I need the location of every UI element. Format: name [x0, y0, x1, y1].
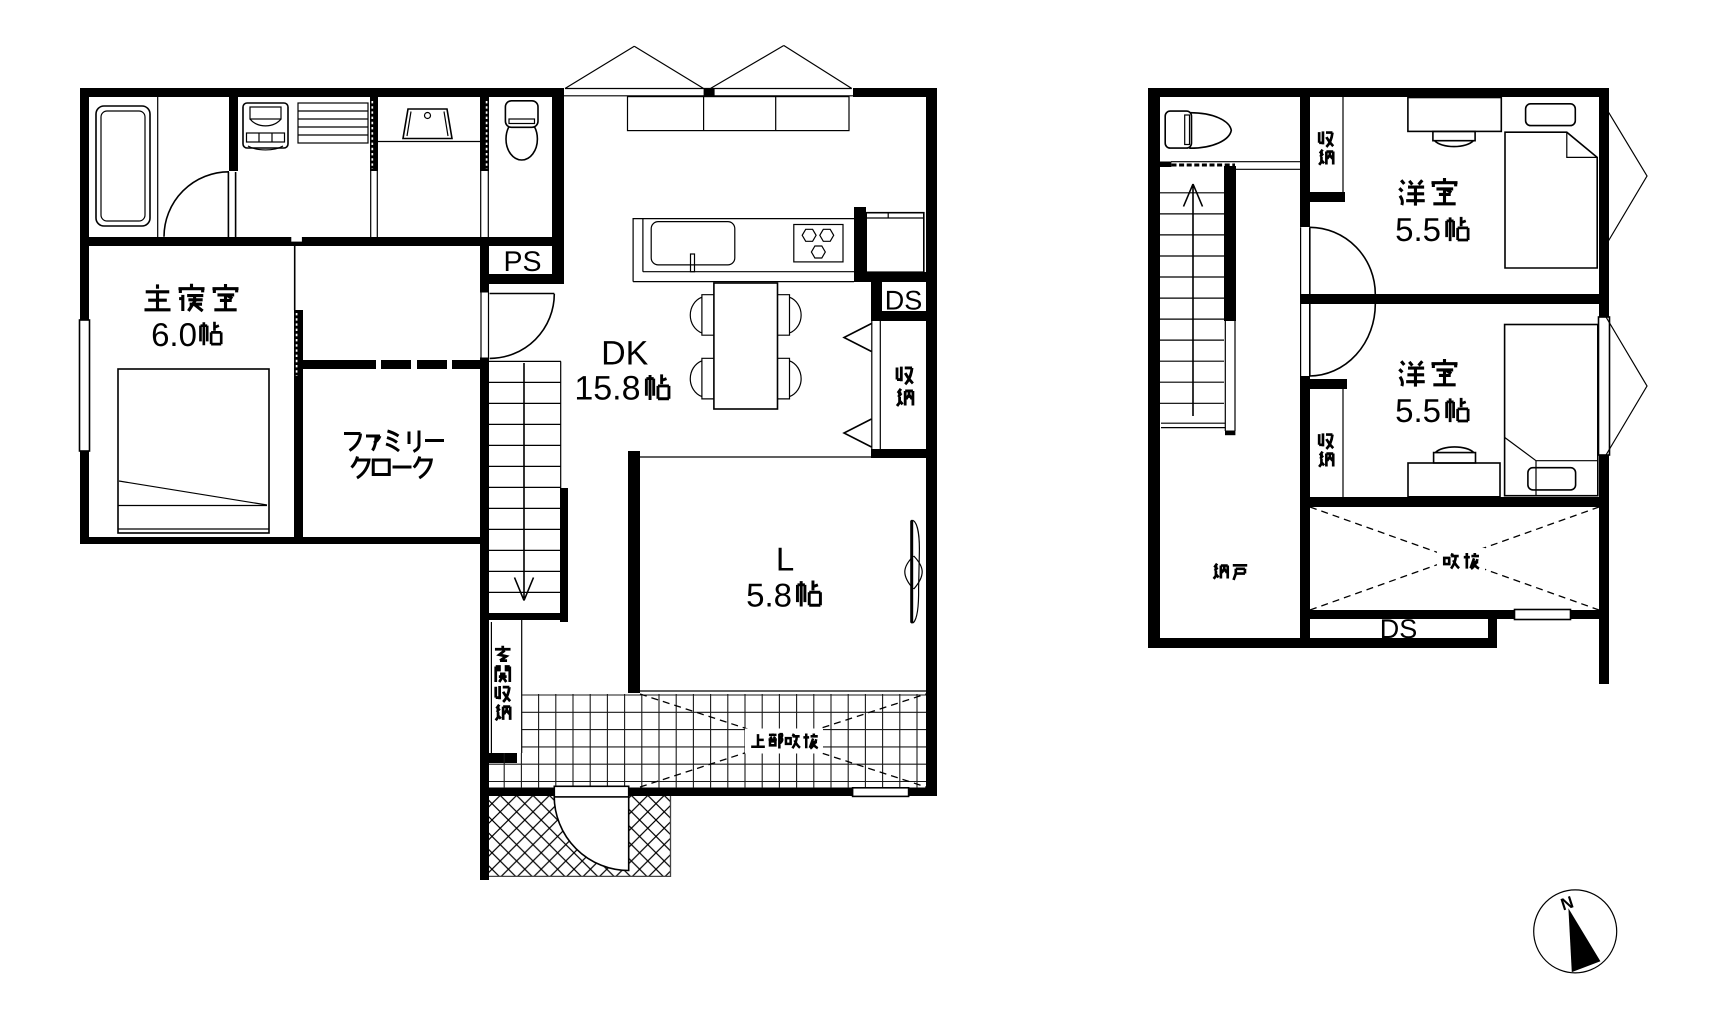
svg-text:15.8: 15.8	[574, 370, 640, 408]
svg-text:PS: PS	[503, 246, 541, 278]
svg-text:5.5: 5.5	[1395, 211, 1441, 248]
svg-text:L: L	[776, 541, 794, 578]
svg-text:6.0: 6.0	[151, 316, 197, 353]
svg-text:5.8: 5.8	[746, 577, 792, 614]
svg-text:5.5: 5.5	[1395, 392, 1441, 429]
svg-text:DS: DS	[885, 286, 923, 316]
svg-text:DK: DK	[601, 335, 649, 373]
svg-text:DS: DS	[1380, 614, 1418, 644]
